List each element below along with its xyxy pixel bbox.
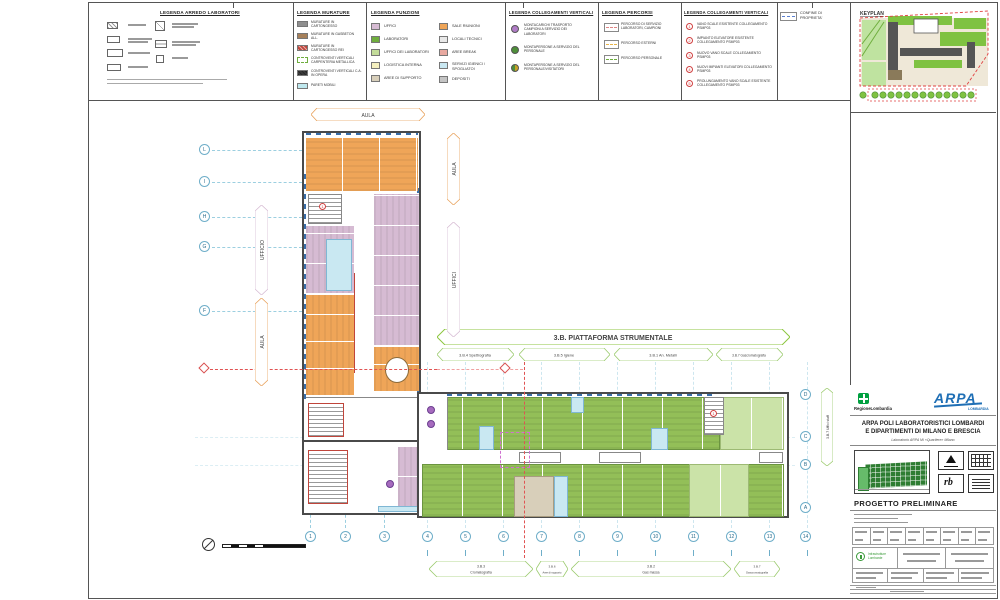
building-rendering bbox=[854, 450, 930, 494]
legend-separator bbox=[293, 2, 294, 100]
svg-text:3.B.2: 3.B.2 bbox=[647, 565, 655, 569]
infrastrutture-lombarde-label: Infrastrutture Lombarde bbox=[868, 553, 896, 561]
percorsi-label: PERCORSO ESTERNI bbox=[621, 41, 677, 45]
grid-bubble: 7 bbox=[536, 531, 547, 542]
svg-text:UFFICI: UFFICI bbox=[452, 272, 458, 288]
svg-text:3.B.3: 3.B.3 bbox=[477, 565, 485, 569]
murature-label: CONTROVENTI VERTICALI CARPENTERIA METALL… bbox=[311, 56, 363, 65]
funzioni-swatch bbox=[439, 36, 448, 43]
keyplan-building bbox=[888, 22, 898, 70]
grid-tick bbox=[579, 550, 580, 556]
legend-arredo-item-text bbox=[172, 23, 198, 25]
upper-wing: 1 bbox=[302, 131, 421, 442]
svg-text:Aree di supporto: Aree di supporto bbox=[542, 571, 562, 575]
grid-bubble: L bbox=[199, 144, 210, 155]
svg-text:3.B.4 Spettrografia: 3.B.4 Spettrografia bbox=[459, 354, 492, 358]
room-tag bbox=[759, 452, 783, 463]
montacarichi-symbol bbox=[511, 25, 519, 33]
grid-bubble: 13 bbox=[764, 531, 775, 542]
percorso-dash bbox=[606, 27, 617, 28]
grid-bubble: 12 bbox=[726, 531, 737, 542]
room-servizi bbox=[651, 428, 668, 450]
montapersone-symbol bbox=[511, 46, 519, 54]
furniture-symbol bbox=[107, 22, 118, 29]
legend-arredo-title: LEGENDA ARREDO LABORATORI bbox=[160, 10, 240, 15]
marker-3: 3 bbox=[686, 52, 693, 59]
room-uffici bbox=[374, 194, 419, 345]
svg-text:Gascromatografia: Gascromatografia bbox=[746, 571, 769, 575]
grid-bubble: 14 bbox=[800, 531, 811, 542]
legend-arredo-item-text bbox=[128, 52, 150, 54]
regione-lombardia-logo bbox=[858, 393, 869, 404]
grid-bubble: 3 bbox=[379, 531, 390, 542]
upper-wing-extension bbox=[302, 442, 421, 515]
confine-dash bbox=[782, 16, 795, 17]
area-label-staff-right: 3.B.7 Uffici staff bbox=[820, 388, 838, 466]
legend-separator bbox=[681, 2, 682, 100]
keyplan-building bbox=[900, 48, 962, 56]
legend-bottom-line bbox=[88, 100, 850, 101]
percorso-dash bbox=[606, 44, 617, 45]
grid-bubble: F bbox=[199, 305, 210, 316]
funzioni-swatch bbox=[439, 49, 448, 56]
montapersone-visitatori-symbol bbox=[511, 64, 519, 72]
legend-percorsi-title: LEGENDA PERCORSI bbox=[602, 10, 653, 15]
keyplan-building bbox=[967, 42, 975, 68]
murature-label: PARETI MOBILI bbox=[311, 83, 361, 87]
legend-arredo-note bbox=[107, 79, 227, 80]
funzioni-label: DEPOSITI bbox=[452, 77, 502, 82]
titleblock-rule bbox=[850, 415, 996, 416]
grid-tick bbox=[541, 550, 542, 556]
project-title-line1: ARPA POLI LABORATORISTICI LOMBARDI bbox=[850, 421, 996, 427]
percorso-magenta bbox=[500, 432, 530, 468]
grid-tick bbox=[807, 550, 808, 556]
funzioni-label: AREE DI SUPPORTO bbox=[384, 76, 436, 81]
address-line bbox=[854, 514, 912, 515]
collegamenti2-label: NUOVO VANO SCALE COLLEGAMENTO PSMP03 bbox=[697, 51, 773, 60]
collegamenti1-label: MONTAPERSONE A SERVIZIO DEL PERSONALE/VI… bbox=[524, 63, 588, 72]
address-line bbox=[854, 522, 908, 523]
grid-tick bbox=[465, 550, 466, 556]
grid-bubble: 6 bbox=[498, 531, 509, 542]
svg-text:AULA: AULA bbox=[452, 162, 458, 176]
project-subtitle: Laboratorio ARPA MI «Quartiere» Milano bbox=[850, 438, 996, 442]
keyplan-green bbox=[940, 32, 986, 46]
zone-label: 3.B.1 An. Metalli bbox=[614, 348, 713, 361]
funzioni-swatch bbox=[439, 23, 448, 30]
zone-label: 3.B.7 Gascromatografia bbox=[716, 348, 783, 361]
room-aula bbox=[306, 138, 418, 191]
legend-arredo-item-text bbox=[172, 41, 200, 43]
zone-label: 3.B.3 Cromatografia bbox=[429, 561, 533, 577]
funzioni-label: AREE BREAK bbox=[452, 50, 502, 55]
room-servizi bbox=[571, 397, 584, 413]
mountain-logo-icon bbox=[938, 451, 964, 470]
grid-tick bbox=[617, 550, 618, 556]
svg-text:Cromatografia: Cromatografia bbox=[470, 571, 492, 575]
funzioni-label: SALE RIUNIONI bbox=[452, 24, 502, 29]
elevator-symbol bbox=[427, 420, 435, 428]
svg-text:UFFICIO: UFFICIO bbox=[260, 240, 266, 260]
scale-bar bbox=[222, 544, 306, 548]
funzioni-label: LABORATORI bbox=[384, 37, 436, 42]
revision-text bbox=[890, 591, 924, 592]
legend-murature-title: LEGENDA MURATURE bbox=[297, 10, 350, 15]
area-label-uffici-right: UFFICI bbox=[447, 222, 465, 337]
phase-label: PROGETTO PRELIMINARE bbox=[854, 499, 958, 508]
murature-label: MURATURE IN CARTONGESSO bbox=[311, 20, 361, 29]
funzioni-swatch bbox=[439, 62, 448, 69]
legend-separator bbox=[505, 2, 506, 100]
keyplan: KEYPLAN bbox=[854, 4, 996, 110]
collegamenti1-label: MONTAPERSONE A SERVIZIO DEL PERSONALE bbox=[524, 45, 588, 54]
svg-text:3.B.6: 3.B.6 bbox=[548, 565, 555, 569]
grid-bubble: H bbox=[199, 211, 210, 222]
legend-arredo-item-text bbox=[172, 26, 194, 28]
regione-lombardia-label: RegioneLombardia bbox=[854, 406, 892, 411]
collegamenti2-label: PROLUNGAMENTO VANO SCALE ESISTENTE COLLE… bbox=[697, 79, 773, 88]
grid-tick bbox=[503, 550, 504, 556]
funzioni-swatch bbox=[371, 49, 380, 56]
funzioni-label: UFFICI DEI LABORATORI bbox=[384, 50, 436, 55]
murature-swatch bbox=[297, 57, 308, 63]
room-supporto bbox=[514, 476, 554, 517]
marker-4: 4 bbox=[686, 66, 693, 73]
murature-swatch bbox=[297, 70, 308, 76]
funzioni-label: SERVIZI IGIENICI / SPOGLIATOI bbox=[452, 62, 498, 71]
grid-tick bbox=[693, 550, 694, 556]
murature-swatch bbox=[297, 21, 308, 27]
legend-arredo-item-text bbox=[172, 44, 196, 46]
percorso-swatch bbox=[604, 55, 619, 64]
percorso-swatch bbox=[604, 40, 619, 49]
crop-mark bbox=[523, 2, 524, 8]
furniture-symbol bbox=[107, 64, 121, 71]
percorsi-label: PERCORSO PERSONALE bbox=[621, 56, 677, 60]
zone-label: 3.B.7 Gascromatografia bbox=[734, 561, 780, 577]
titleblock-rule bbox=[850, 445, 996, 446]
grid-bubble: 4 bbox=[422, 531, 433, 542]
legend-collegamenti2-title: LEGENDA COLLEGAMENTI VERTICALI bbox=[684, 10, 768, 15]
grid-line bbox=[212, 150, 302, 151]
rb-logo-icon: rb bbox=[938, 474, 964, 493]
legend-separator bbox=[366, 2, 367, 100]
svg-text:3.B.7: 3.B.7 bbox=[753, 565, 760, 569]
room-tag bbox=[599, 452, 641, 463]
project-title-line2: E DIPARTIMENTI DI MILANO E BRESCIA bbox=[850, 429, 996, 435]
legend-separator bbox=[777, 2, 778, 100]
window-strip bbox=[447, 394, 717, 396]
area-label-aula-right: AULA bbox=[447, 133, 465, 205]
funzioni-label: UFFICI bbox=[384, 24, 436, 29]
lines-logo-icon bbox=[968, 474, 994, 493]
grid-bubble: 11 bbox=[688, 531, 699, 542]
grid-tick bbox=[769, 550, 770, 556]
funzioni-swatch bbox=[371, 75, 380, 82]
grid-bubble: 2 bbox=[340, 531, 351, 542]
legend-arredo-item-text bbox=[128, 24, 146, 26]
banner-piattaforma: 3.B. PIATTAFORMA STRUMENTALE bbox=[437, 329, 790, 345]
svg-text:3.B.7 Uffici staff: 3.B.7 Uffici staff bbox=[826, 415, 830, 439]
murature-swatch bbox=[297, 45, 308, 51]
legend-arredo-item-text bbox=[128, 38, 152, 40]
grid-tick bbox=[427, 550, 428, 556]
lab-rooms-south-light bbox=[689, 464, 749, 517]
titleblock-table bbox=[852, 527, 994, 545]
legend-separator bbox=[598, 2, 599, 100]
room-servizi bbox=[479, 426, 494, 450]
svg-text:AULA: AULA bbox=[260, 335, 266, 349]
confine-swatch bbox=[780, 12, 797, 21]
svg-text:3.B. PIATTAFORMA STRUMENTALE: 3.B. PIATTAFORMA STRUMENTALE bbox=[554, 335, 673, 342]
drawing-sheet: LEGENDA ARREDO LABORATORI LEGENDA MURATU… bbox=[0, 0, 1000, 600]
murature-label: MURATURE IN CARTONGESSO REI bbox=[311, 44, 361, 53]
furniture-symbol bbox=[107, 36, 120, 43]
legend-collegamenti1-title: LEGENDA COLLEGAMENTI VERTICALI bbox=[509, 10, 593, 15]
collegamenti2-label: IMPIANTO ELEVATORE ESISTENTE COLLEGAMENT… bbox=[697, 36, 773, 45]
zone-label: 3.B.2 Gas massa bbox=[571, 561, 731, 577]
keyplan-building bbox=[914, 19, 938, 33]
murature-label: CONTROVENTI VERTICALI C.A. IN OPERA bbox=[311, 69, 363, 78]
titleblock-rule bbox=[850, 510, 996, 511]
room-servizi bbox=[326, 239, 352, 291]
legend-arredo-item-text bbox=[128, 66, 148, 68]
grid-bubble: B bbox=[800, 459, 811, 470]
furniture-symbol bbox=[155, 21, 165, 31]
meeting-table bbox=[385, 357, 409, 383]
lower-wing: 1 bbox=[417, 392, 789, 518]
area-label-ufficio-left: UFFICIO bbox=[255, 205, 273, 295]
grid-bubble: 5 bbox=[460, 531, 471, 542]
marker-2: 2 bbox=[686, 37, 693, 44]
confine-label: CONFINE DI PROPRIETA' bbox=[800, 11, 840, 20]
wall bbox=[354, 273, 355, 373]
svg-text:Gas massa: Gas massa bbox=[642, 571, 659, 575]
funzioni-label: LOCALI TECNICI bbox=[452, 37, 502, 42]
signature-row: Infrastrutture Lombarde bbox=[852, 547, 994, 569]
marker-1: 1 bbox=[686, 23, 693, 30]
svg-text:AULA: AULA bbox=[361, 113, 375, 119]
signature-row bbox=[852, 569, 994, 583]
arpa-logo-sub: LOMBARDIA bbox=[968, 407, 989, 411]
percorso-line bbox=[205, 369, 437, 370]
window-strip bbox=[306, 133, 418, 135]
furniture-symbol bbox=[156, 55, 164, 63]
keyplan-title: KEYPLAN bbox=[860, 11, 884, 17]
revision-row-line bbox=[850, 593, 996, 594]
area-label-aula-left: AULA bbox=[255, 298, 273, 386]
furniture-symbol bbox=[107, 49, 123, 57]
furniture-symbol bbox=[155, 40, 167, 48]
percorso-line bbox=[437, 369, 523, 370]
percorso-swatch bbox=[604, 23, 619, 32]
grid-bubble: 1 bbox=[305, 531, 316, 542]
building-grid-logo-icon bbox=[968, 451, 994, 470]
grid-bubble: G bbox=[199, 241, 210, 252]
north-arrow-icon bbox=[202, 538, 215, 551]
keyplan-bottom-line bbox=[850, 112, 996, 113]
stair-marker-1: 1 bbox=[710, 410, 717, 417]
legend-funzioni-title: LEGENDA FUNZIONI bbox=[371, 10, 419, 15]
stair-marker-1: 1 bbox=[319, 203, 326, 210]
revision-text bbox=[856, 587, 876, 588]
infrastrutture-lombarde-cell: Infrastrutture Lombarde bbox=[853, 548, 898, 568]
stairwell bbox=[308, 194, 342, 224]
stairwell bbox=[308, 403, 344, 437]
stairwell bbox=[308, 450, 348, 504]
titleblock: RegioneLombardia ARPA LOMBARDIA ARPA POL… bbox=[850, 385, 996, 597]
grid-bubble: A bbox=[800, 502, 811, 513]
funzioni-swatch bbox=[371, 62, 380, 69]
partner-icons: rb bbox=[938, 451, 994, 493]
svg-text:3.B.5 Igiene: 3.B.5 Igiene bbox=[554, 354, 574, 358]
keyplan-building bbox=[888, 70, 902, 80]
entry-canopy bbox=[378, 506, 419, 512]
grid-bubble: 8 bbox=[574, 531, 585, 542]
lab-rooms-north-east bbox=[720, 397, 784, 450]
room-servizi bbox=[554, 476, 568, 517]
grid-line bbox=[212, 182, 302, 183]
funzioni-label: LOGISTICA INTERNA bbox=[384, 63, 436, 68]
collegamenti2-label: NUOVI IMPIANTI ELEVATORI COLLEGAMENTO PS… bbox=[697, 65, 773, 74]
room-aula bbox=[306, 295, 354, 395]
funzioni-swatch bbox=[439, 76, 448, 83]
grid-bubble: D bbox=[800, 389, 811, 400]
collegamenti2-label: VANO SCALE ESISTENTE COLLEGAMENTO PSMP03 bbox=[697, 22, 773, 31]
crop-mark bbox=[233, 2, 234, 8]
collegamenti1-label: MONTACARICHI TRASPORTO CAMPIONI A SERVIZ… bbox=[524, 23, 588, 36]
svg-text:3.B.7 Gascromatografia: 3.B.7 Gascromatografia bbox=[732, 354, 766, 358]
legend-arredo-note bbox=[107, 83, 203, 84]
percorso-dash bbox=[606, 59, 617, 60]
keyplan-green bbox=[862, 62, 886, 86]
elevator-symbol bbox=[427, 406, 435, 414]
area-label-aula-top: AULA bbox=[311, 108, 425, 121]
svg-text:3.B.1 An. Metalli: 3.B.1 An. Metalli bbox=[649, 354, 677, 358]
percorsi-label: PERCORSO DI SERVIZIO LABORATORI, CAMPION… bbox=[621, 22, 677, 31]
keyplan-green bbox=[954, 18, 986, 29]
address-line bbox=[854, 518, 898, 519]
legend-arredo-item-text bbox=[172, 57, 188, 59]
murature-swatch bbox=[297, 33, 308, 39]
crop-mark bbox=[812, 2, 813, 8]
grid-tick bbox=[731, 550, 732, 556]
elevator-symbol bbox=[386, 480, 394, 488]
infrastrutture-lombarde-logo bbox=[856, 552, 865, 561]
room-uffici bbox=[398, 446, 419, 506]
grid-bubble: 10 bbox=[650, 531, 661, 542]
grid-bubble: I bbox=[199, 176, 210, 187]
grid-tick bbox=[655, 550, 656, 556]
murature-label: MURATURE IN GASBETON ALL. bbox=[311, 32, 361, 41]
zone-label: 3.B.5 Igiene bbox=[519, 348, 610, 361]
grid-bubble: C bbox=[800, 431, 811, 442]
keyplan-green bbox=[914, 60, 962, 68]
zone-label: 3.B.4 Spettrografia bbox=[437, 348, 514, 361]
funzioni-swatch bbox=[371, 36, 380, 43]
funzioni-swatch bbox=[371, 23, 380, 30]
legend-arredo-item-text bbox=[128, 41, 148, 43]
zone-label: 3.B.6 Aree di supporto bbox=[536, 561, 568, 577]
marker-5: 5 bbox=[686, 80, 693, 87]
lobby bbox=[422, 397, 448, 450]
murature-swatch bbox=[297, 83, 308, 89]
grid-bubble: 9 bbox=[612, 531, 623, 542]
